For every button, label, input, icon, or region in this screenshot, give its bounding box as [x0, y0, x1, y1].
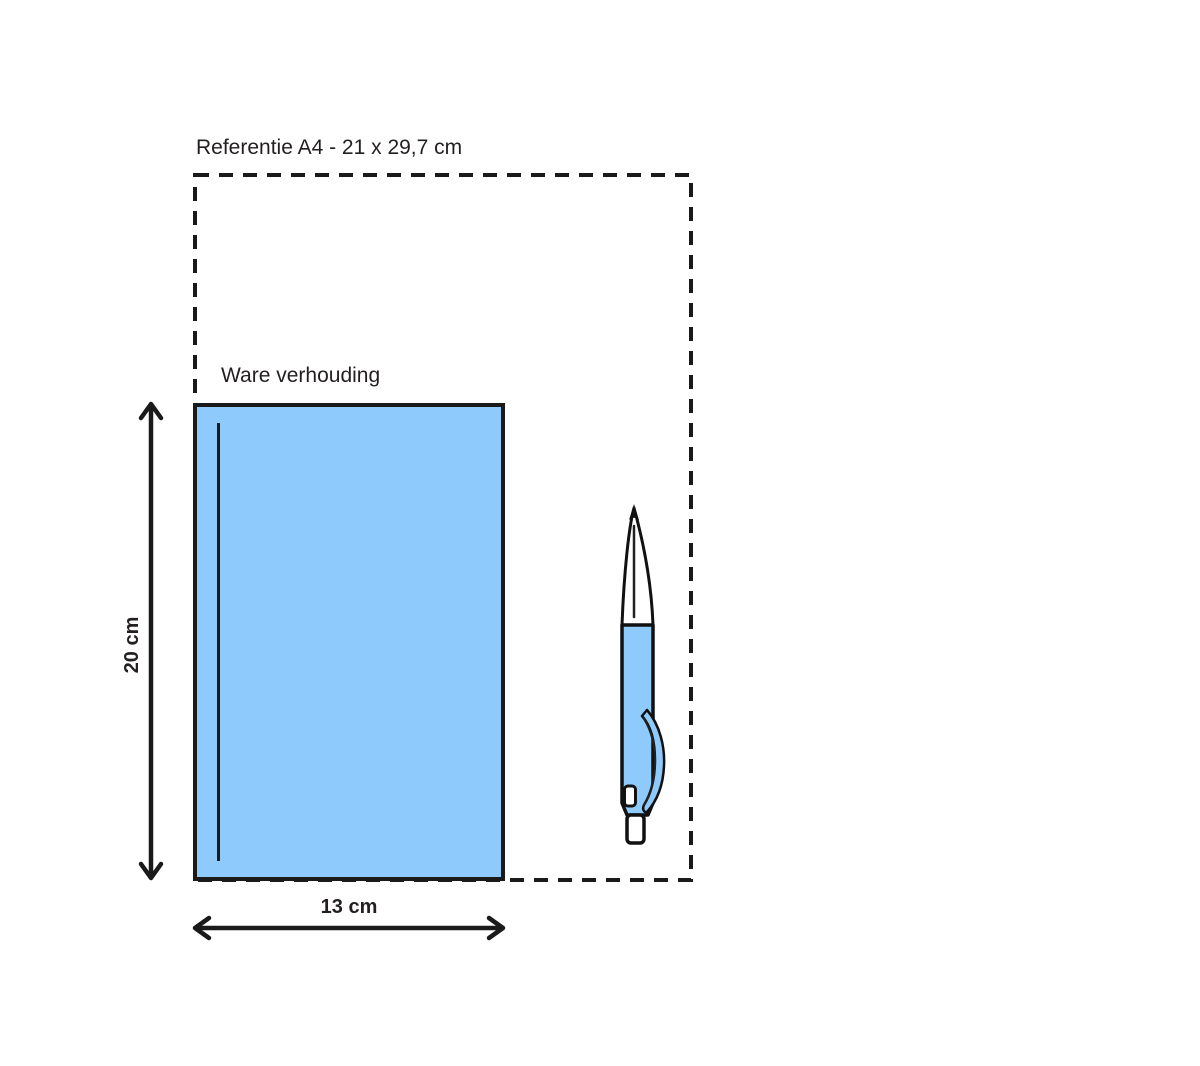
- size-comparison-diagram: Referentie A4 - 21 x 29,7 cm Ware verhou…: [0, 0, 1200, 1066]
- spine-line: [217, 423, 220, 861]
- height-label: 20 cm: [112, 585, 152, 705]
- pen-point: [629, 504, 639, 520]
- pen-tip-cone: [622, 508, 653, 625]
- reference-label: Referentie A4 - 21 x 29,7 cm: [196, 136, 462, 159]
- pen-push-button: [627, 815, 644, 843]
- pen-slot: [625, 786, 636, 806]
- width-label: 13 cm: [269, 896, 429, 919]
- item-rectangle: [193, 403, 505, 881]
- pen-icon: [601, 498, 667, 850]
- scale-label: Ware verhouding: [221, 364, 380, 387]
